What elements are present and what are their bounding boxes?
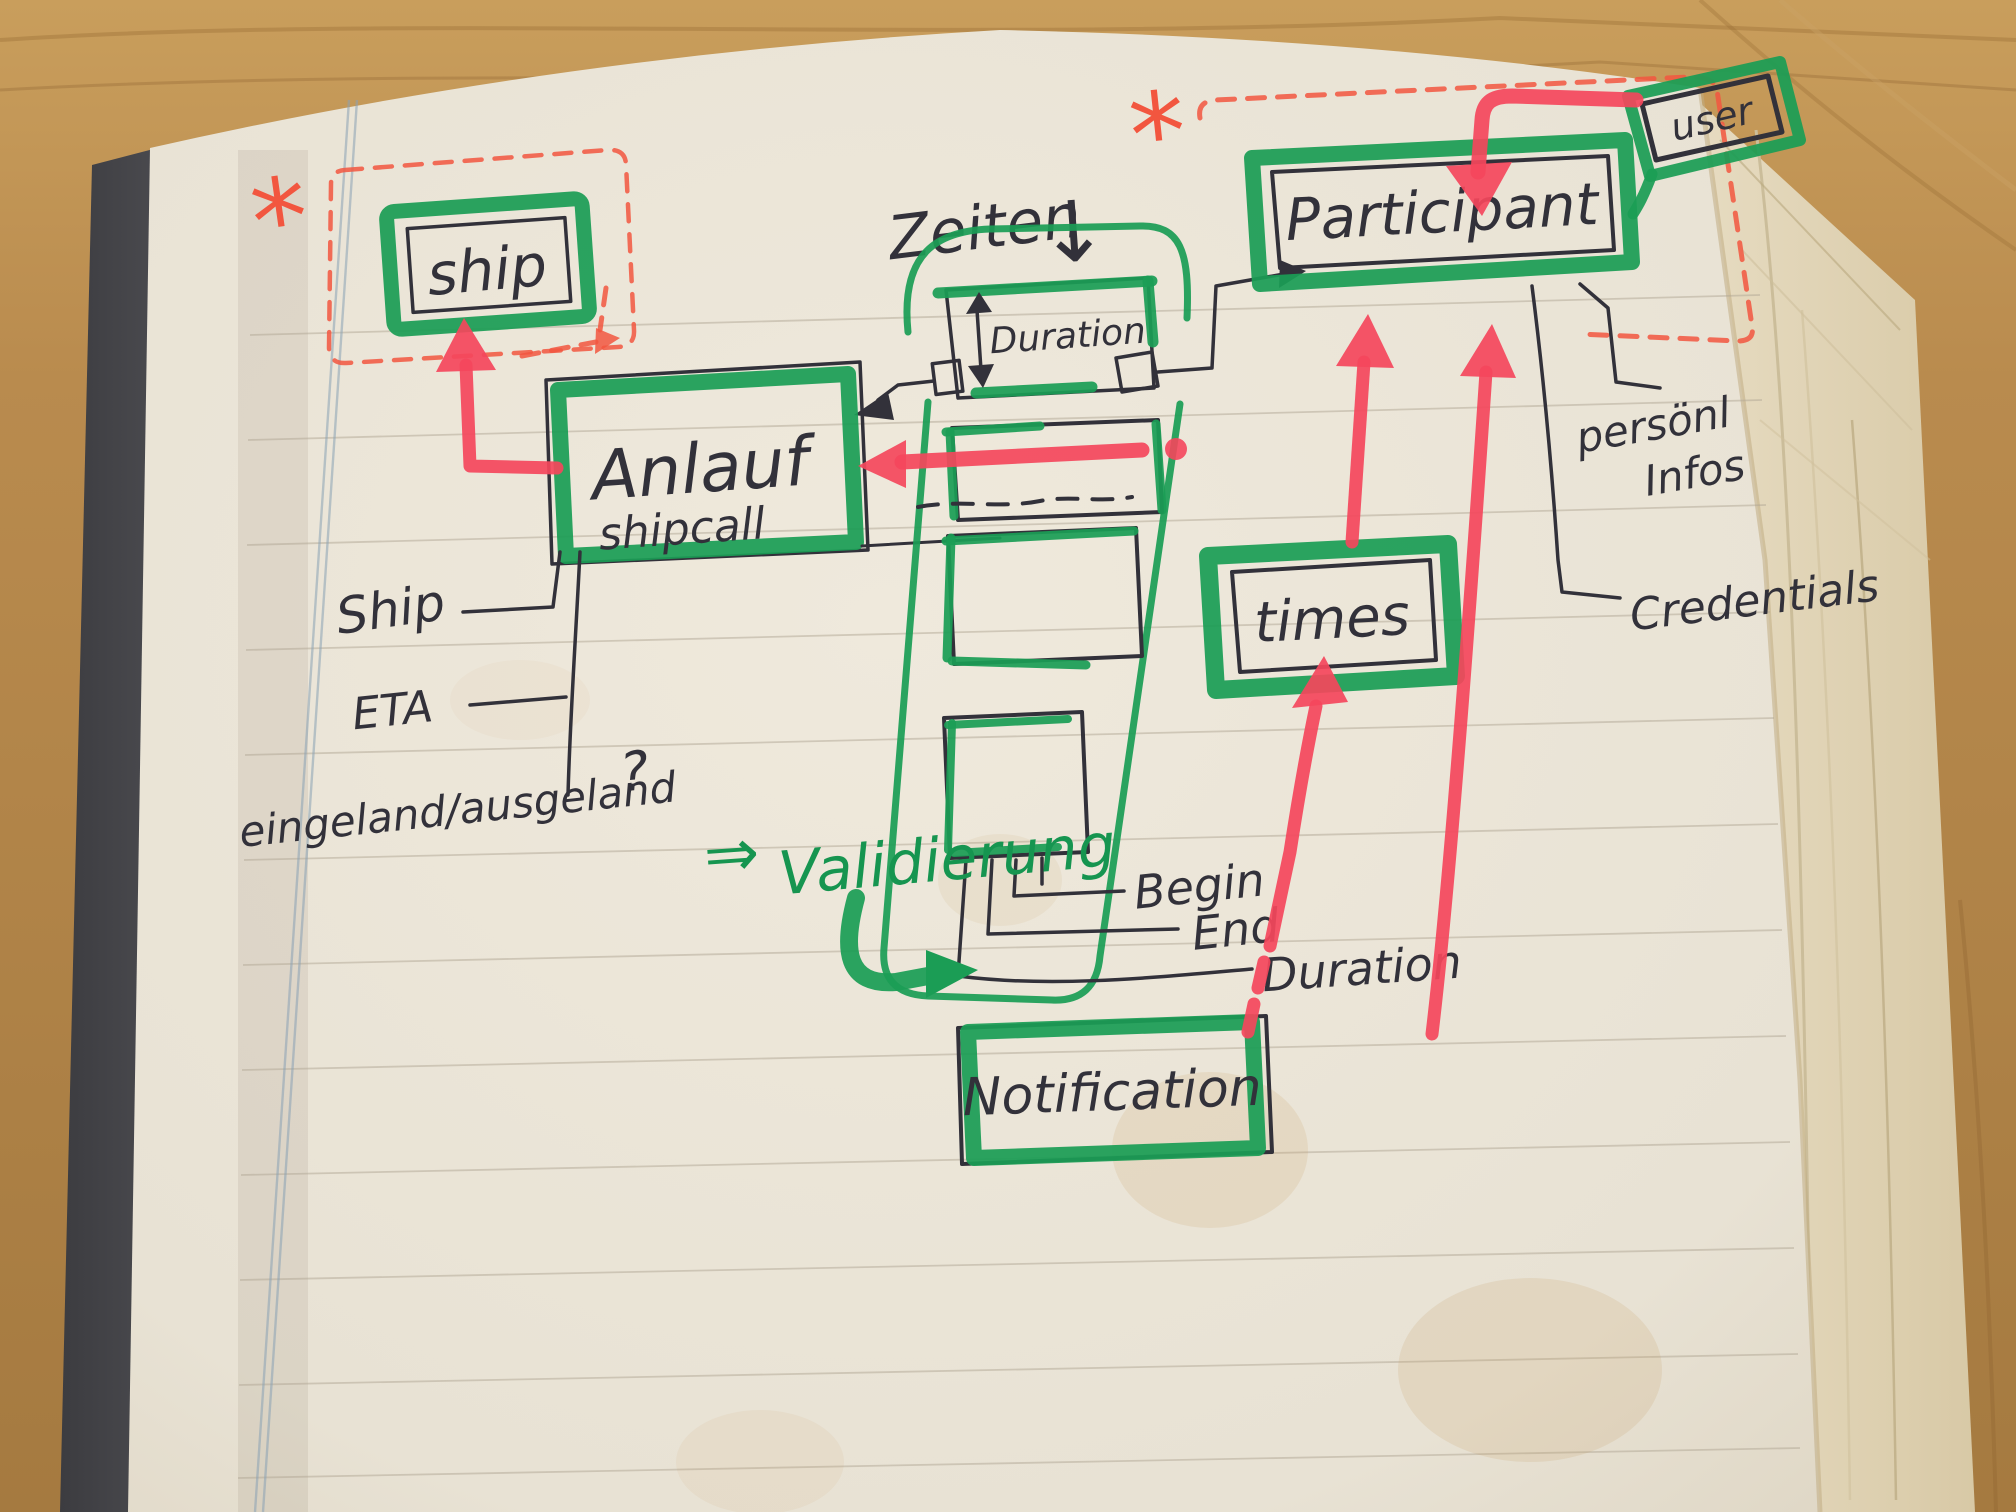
ship-label: ship (424, 231, 549, 309)
times-label: times (1253, 583, 1412, 656)
red-dot (1165, 438, 1187, 460)
zeiten-down-arrow-icon: ↓ (1035, 181, 1112, 284)
validierung-arrow-icon: ⇒ (701, 813, 762, 894)
eta-attribute-label: ETA (350, 681, 436, 740)
notification-label: Notification (962, 1058, 1263, 1128)
notebook-photo: * ship Zeiten ↓ Duration * (0, 0, 2016, 1512)
